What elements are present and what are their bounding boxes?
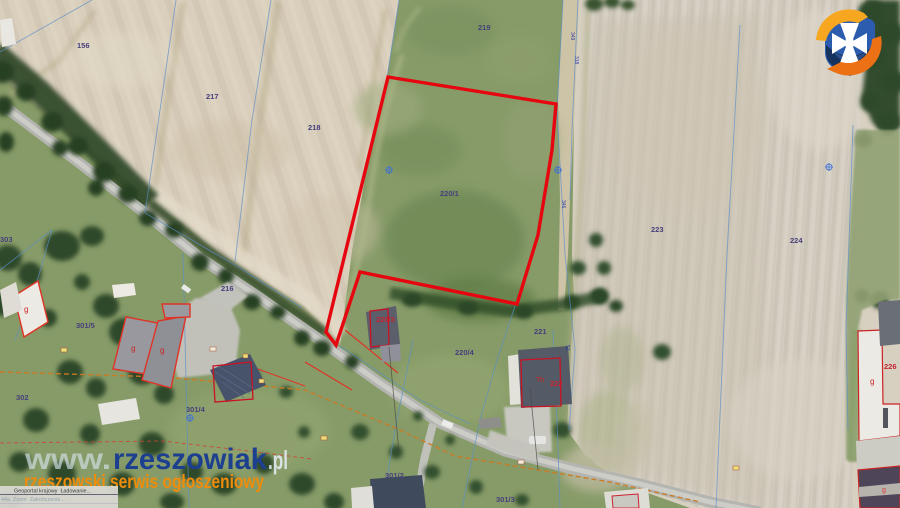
svg-text:222: 222 (550, 379, 563, 388)
svg-text:g: g (882, 487, 886, 494)
svg-text:301/2: 301/2 (385, 471, 404, 480)
svg-text:220/1: 220/1 (440, 189, 459, 198)
svg-text:218: 218 (308, 123, 321, 132)
svg-text:g: g (24, 305, 28, 314)
svg-text:Th: Th (536, 377, 544, 384)
svg-text:217: 217 (206, 92, 219, 101)
svg-text:301/5: 301/5 (76, 321, 95, 330)
svg-text:44a Zoom Zakończenie...: 44a Zoom Zakończenie... (1, 497, 65, 503)
svg-text:221: 221 (534, 327, 547, 336)
svg-text:318: 318 (573, 56, 579, 65)
svg-text:226: 226 (884, 362, 897, 371)
svg-text:346: 346 (560, 200, 566, 209)
svg-text:g: g (160, 346, 164, 355)
svg-text:216: 216 (221, 284, 234, 293)
svg-text:g: g (870, 377, 874, 386)
svg-text:156: 156 (77, 41, 90, 50)
svg-text:52: 52 (564, 345, 570, 351)
svg-text:Geoportal krajowy Ładowanie..: Geoportal krajowy Ładowanie... (14, 489, 91, 495)
svg-text:220/3: 220/3 (376, 315, 395, 324)
svg-text:301/4: 301/4 (186, 405, 206, 414)
svg-text:g: g (131, 344, 135, 353)
svg-text:349: 349 (569, 32, 575, 41)
svg-text:219: 219 (478, 23, 491, 32)
svg-text:302: 302 (16, 393, 29, 402)
svg-text:224: 224 (790, 236, 803, 245)
svg-text:.pl: .pl (268, 445, 288, 475)
svg-text:220/4: 220/4 (455, 348, 475, 357)
svg-text:303: 303 (0, 235, 13, 244)
svg-text:223: 223 (651, 225, 664, 234)
svg-text:301/3: 301/3 (496, 495, 515, 504)
